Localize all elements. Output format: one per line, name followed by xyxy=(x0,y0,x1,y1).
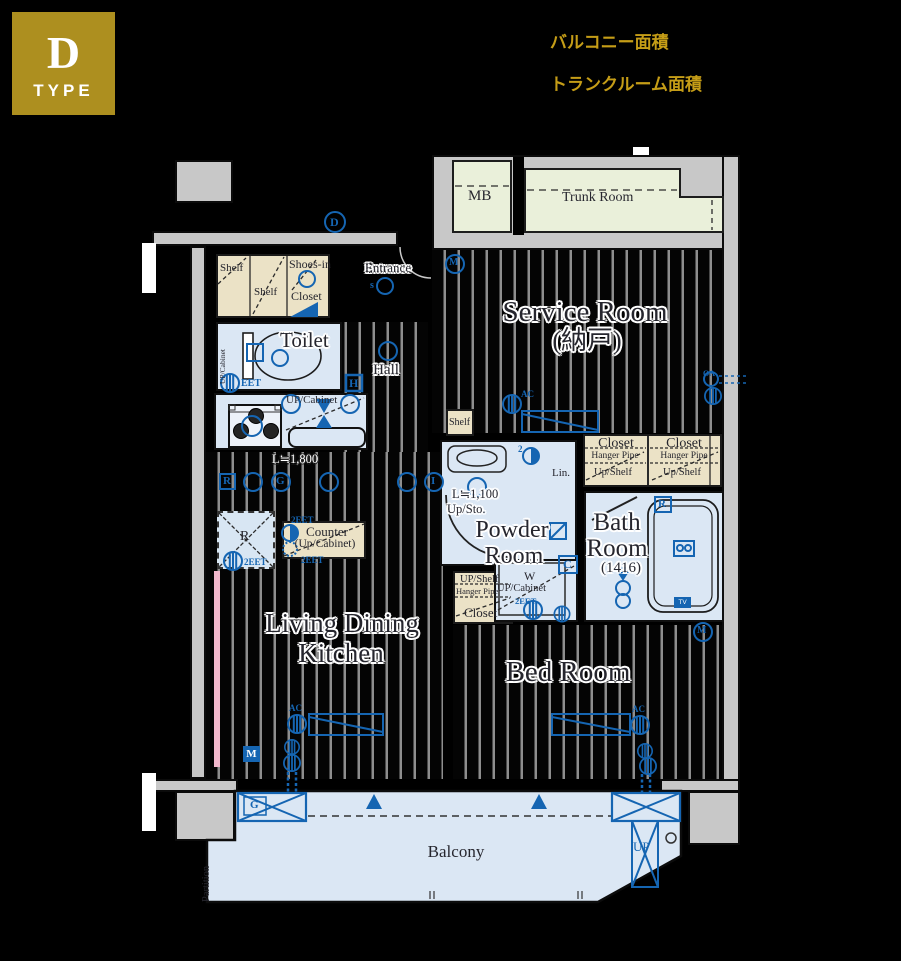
powder-upsto-label: Up/Sto. xyxy=(447,503,486,516)
fridge-eet-label: 2EET xyxy=(244,558,267,567)
counter-eet-bottom: 2EET xyxy=(301,556,324,565)
balcony-up-label: UP xyxy=(633,840,650,853)
hall-h-mark: H xyxy=(349,377,358,389)
up-shelf2-label: Up/Shelf xyxy=(663,468,701,479)
shoes-in-label-1: Shoes-in xyxy=(289,258,331,270)
oa-icon xyxy=(705,388,721,404)
bath-r-mark: R xyxy=(658,499,666,510)
partition-label: Partition xyxy=(202,852,213,902)
i-mark: I xyxy=(431,476,435,487)
bath-tv-label: TV xyxy=(678,599,686,606)
entrance-step-icon xyxy=(290,302,318,317)
living-m-label: M xyxy=(246,748,256,760)
ac-icon xyxy=(503,395,521,413)
powder-2-mark: 2 xyxy=(518,445,523,454)
stove-burners xyxy=(229,405,281,439)
r-box-mark: R xyxy=(223,476,231,487)
counter-label-1: Counter xyxy=(306,525,348,538)
g-mark: G xyxy=(276,476,285,487)
toilet-label: Toilet xyxy=(280,330,329,351)
powder-label-2: Room xyxy=(485,544,544,568)
powder-length-label: L≒1,100 xyxy=(452,488,498,501)
drain-icon xyxy=(285,740,299,754)
laundry-eet-label: 2EET xyxy=(515,597,536,606)
living-ac-label: AC xyxy=(289,704,302,713)
bath-label-1: Bath xyxy=(593,510,640,535)
ac-icon xyxy=(288,715,306,733)
bedcloset-hanger-label: Hanger Pipe xyxy=(456,587,498,596)
eet-icon xyxy=(224,552,242,570)
d-mark: D xyxy=(330,216,339,228)
entrance-label: Entrance xyxy=(365,261,411,274)
laundry-cabinet-label: UP/Cabinet xyxy=(497,584,546,595)
bath-size-label: (1416) xyxy=(601,561,641,576)
bedcloset-upshelf-label: UP/Shelf xyxy=(460,575,499,586)
kitchen-cabinet-label: UP/Cabinet xyxy=(286,395,337,406)
service-room-label-1: Service Room xyxy=(502,298,667,327)
living-m-box: M xyxy=(243,746,260,762)
floor-plan-page: D TYPE バルコニー面積 トランクルーム面積 xyxy=(0,0,901,961)
up-shelf1-label: Up/Shelf xyxy=(594,468,632,479)
service-ac-label: AC xyxy=(521,390,534,399)
bath-tv-box: TV xyxy=(674,597,691,608)
plan-linework xyxy=(0,0,901,961)
service-room-label-2: (納戸) xyxy=(552,328,621,354)
c-box-mark: C xyxy=(563,558,572,570)
trunk-label: Trunk Room xyxy=(562,191,633,205)
closet2-label: Closet xyxy=(666,437,702,451)
service-m-mark: M xyxy=(449,258,458,268)
bedcloset-closet-label: Closet xyxy=(464,606,497,619)
ldk-label-1: Living Dining xyxy=(265,610,419,637)
kitchen-length-label: L≒1,800 xyxy=(272,453,318,466)
powder-label-1: Powder xyxy=(475,518,548,542)
toilet-cabinet-label: UP/Cabinet xyxy=(219,338,227,384)
shoes-in-label-2: Closet xyxy=(291,290,322,302)
entrance-s: s xyxy=(370,281,374,291)
shelf-label-2: Shelf xyxy=(254,287,277,298)
bath-label-2: Room xyxy=(586,536,647,561)
counter-label-2: (Up/Cabinet) xyxy=(295,539,356,551)
bedroom-m-mark: M xyxy=(697,626,706,636)
hanger-pipe2-label: Hanger Pipe xyxy=(660,452,707,462)
fridge-r-label: R xyxy=(240,530,249,544)
shelf-label-1: Shelf xyxy=(220,263,243,274)
bedroom-ac-label: AC xyxy=(632,705,645,714)
closet1-label: Closet xyxy=(598,437,634,451)
counter-eet-top: 2EET xyxy=(291,516,314,525)
ac-icon xyxy=(631,716,649,734)
laundry-w-label: W xyxy=(524,570,535,582)
hall-label: Hall xyxy=(373,363,399,378)
mb-label: MB xyxy=(468,189,491,204)
drain-icon xyxy=(638,744,652,758)
ldk-label-2: Kitchen xyxy=(298,640,383,667)
balcony-label: Balcony xyxy=(428,843,485,860)
toilet-eet-label: EET xyxy=(241,379,261,389)
blue-glyphs xyxy=(290,302,632,809)
oa-label: OA xyxy=(703,370,715,378)
service-shelf-label: Shelf xyxy=(449,418,470,428)
bedroom-label: Bed Room xyxy=(506,658,631,687)
balcony-g-mark: G xyxy=(250,800,259,811)
linen-label: Lin. xyxy=(552,468,570,479)
hanger-pipe1-label: Hanger Pipe xyxy=(591,452,638,462)
